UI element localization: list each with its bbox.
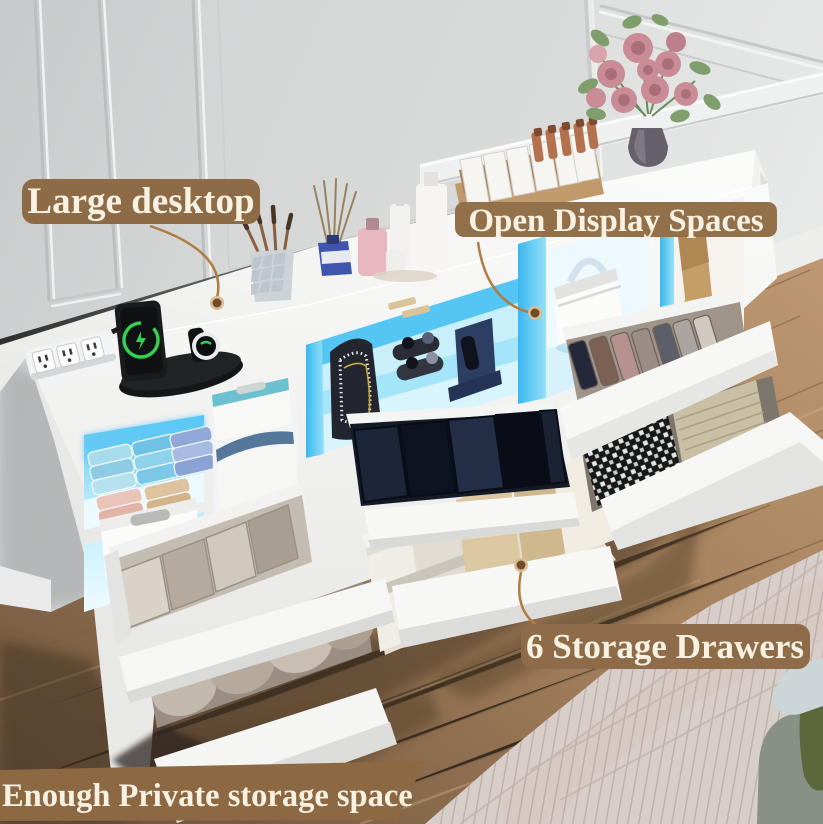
svg-text:Open Display Spaces: Open Display Spaces <box>468 203 763 239</box>
svg-text:Large desktop: Large desktop <box>27 181 254 222</box>
svg-text:Enough Private storage space: Enough Private storage space <box>2 778 413 814</box>
svg-text:6 Storage Drawers: 6 Storage Drawers <box>526 627 804 666</box>
